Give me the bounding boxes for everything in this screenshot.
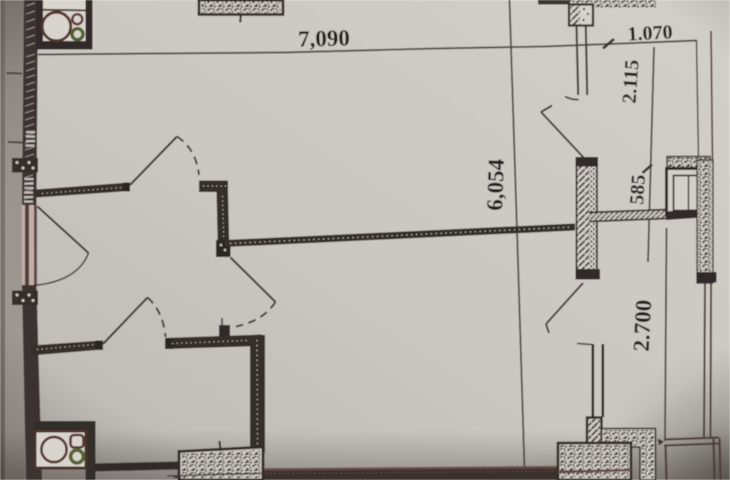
svg-text:2.115: 2.115: [619, 59, 644, 104]
svg-text:585: 585: [626, 174, 650, 205]
svg-text:2.700: 2.700: [629, 299, 657, 352]
svg-text:7,090: 7,090: [298, 25, 350, 51]
svg-text:6,054: 6,054: [482, 158, 509, 211]
svg-text:1.070: 1.070: [627, 21, 673, 45]
